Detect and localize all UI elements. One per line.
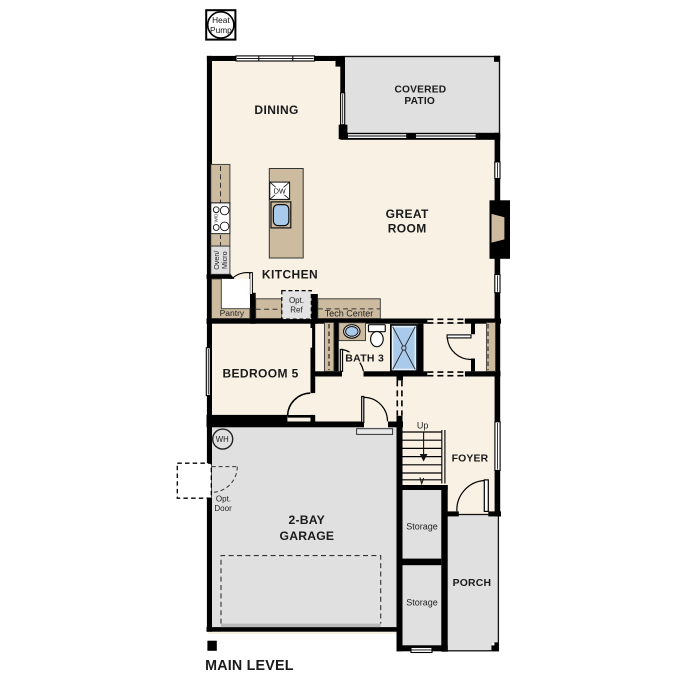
svg-text:Storage: Storage — [406, 598, 438, 608]
svg-text:2-BAY: 2-BAY — [288, 513, 324, 527]
svg-text:Opt.: Opt. — [216, 495, 231, 504]
svg-text:Storage: Storage — [406, 522, 438, 532]
svg-text:MAIN LEVEL: MAIN LEVEL — [205, 658, 294, 674]
svg-text:BEDROOM 5: BEDROOM 5 — [222, 367, 298, 381]
svg-text:PORCH: PORCH — [453, 578, 492, 589]
svg-text:Pantry: Pantry — [220, 308, 245, 318]
svg-text:KITCHEN: KITCHEN — [262, 267, 318, 281]
svg-text:Door: Door — [214, 504, 232, 513]
svg-text:Tech Center: Tech Center — [325, 309, 374, 319]
svg-text:PATIO: PATIO — [404, 96, 435, 107]
svg-text:GARAGE: GARAGE — [280, 529, 335, 543]
svg-text:COVERED: COVERED — [395, 84, 447, 95]
svg-text:FOYER: FOYER — [452, 453, 489, 464]
svg-text:Ref: Ref — [290, 305, 303, 314]
svg-text:BATH 3: BATH 3 — [345, 353, 384, 365]
svg-text:Heat: Heat — [212, 15, 230, 25]
svg-text:WH: WH — [216, 435, 229, 444]
svg-text:DINING: DINING — [254, 103, 298, 117]
svg-text:Up: Up — [417, 420, 429, 430]
svg-text:ROOM: ROOM — [388, 222, 427, 236]
svg-text:W/D: W/D — [214, 213, 219, 223]
svg-text:GREAT: GREAT — [386, 207, 429, 221]
svg-text:DW: DW — [274, 187, 286, 196]
svg-text:Opt.: Opt. — [289, 296, 304, 305]
svg-text:Pump: Pump — [210, 25, 232, 35]
svg-text:Micro: Micro — [220, 251, 229, 269]
